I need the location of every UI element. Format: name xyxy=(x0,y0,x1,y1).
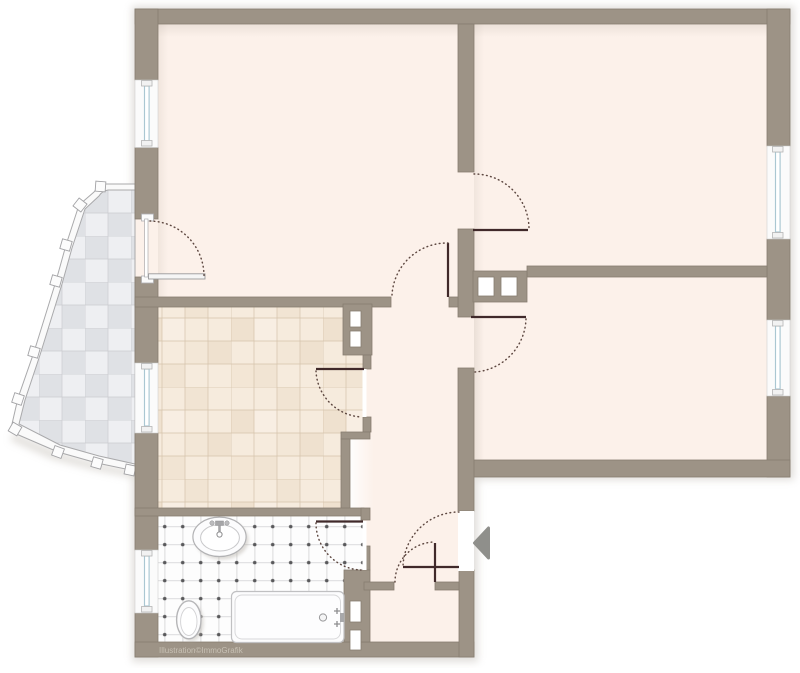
svg-text:Illustration©ImmoGrafik: Illustration©ImmoGrafik xyxy=(159,646,244,655)
